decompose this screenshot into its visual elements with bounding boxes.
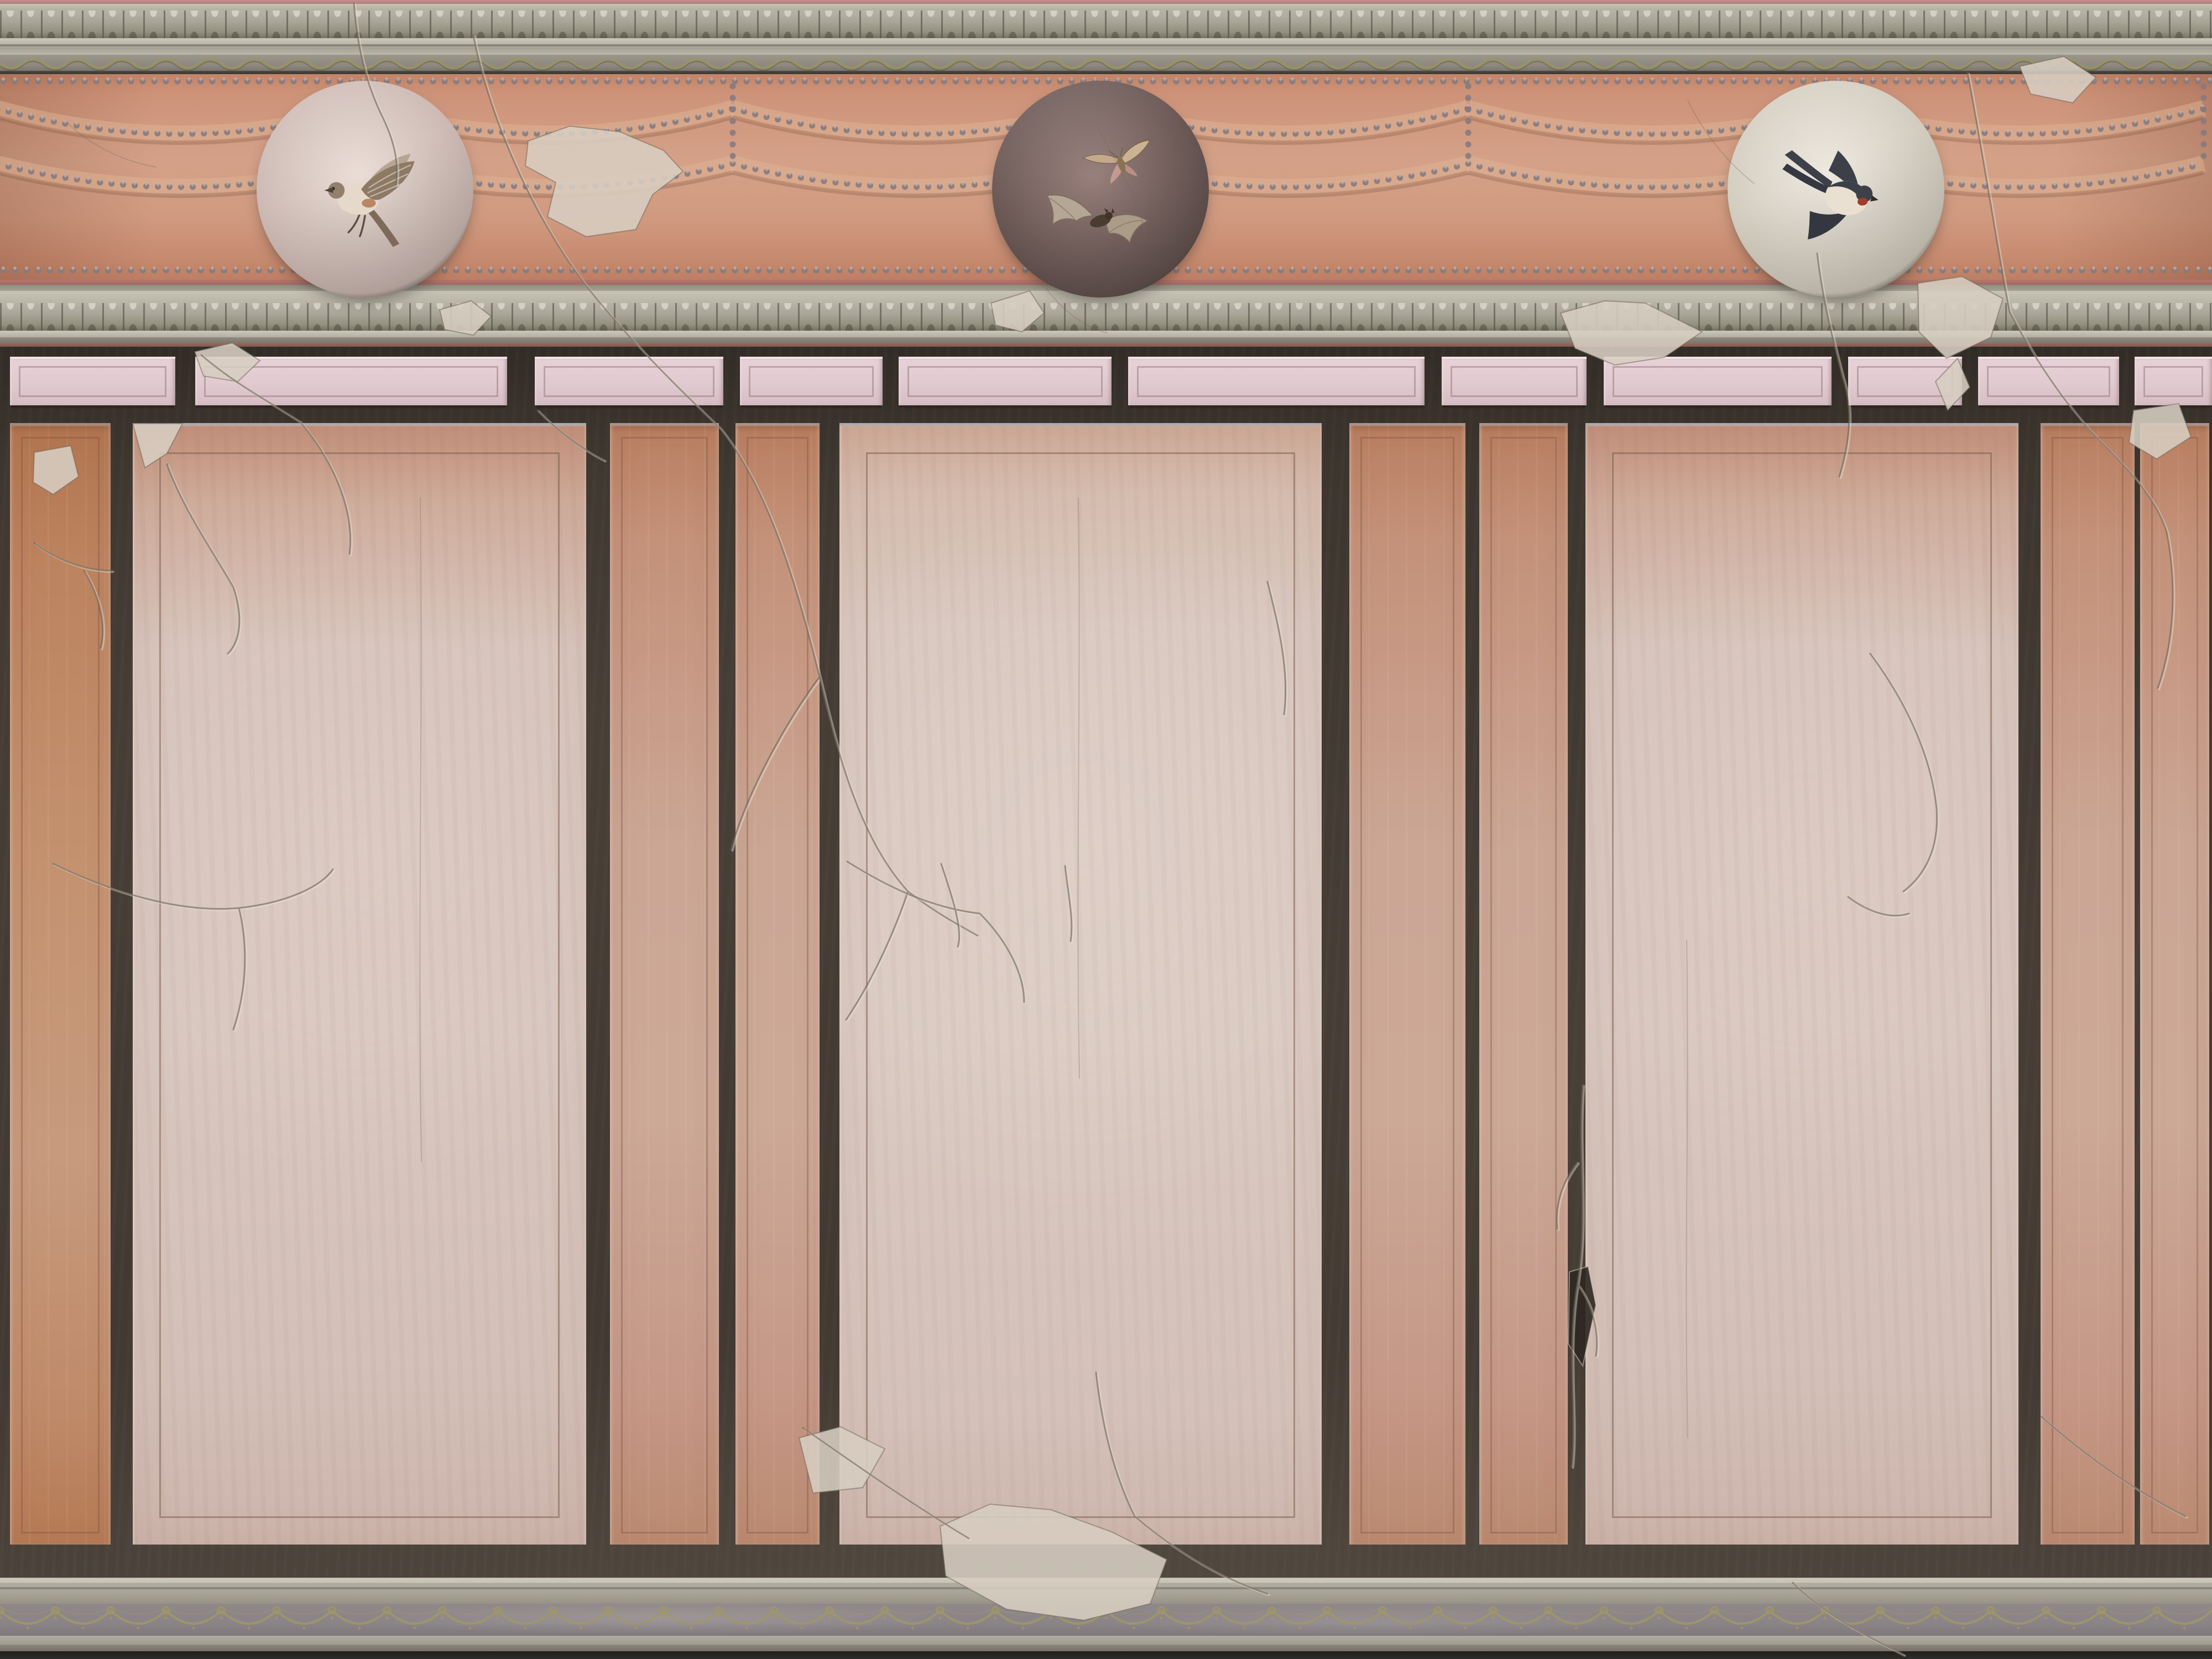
plaster-chip: [2129, 404, 2191, 459]
plaster-chip: [940, 1504, 1167, 1620]
plaster-chip: [1936, 358, 1970, 410]
plaster-chip: [1918, 276, 2003, 358]
plaster-chip: [1561, 301, 1702, 365]
plaster-chip: [525, 126, 683, 237]
crack-and-chip-overlay: [0, 0, 2212, 1659]
plaster-chip: [799, 1427, 885, 1493]
plaster-chip: [991, 291, 1044, 332]
plaster-chip: [440, 301, 491, 335]
fresco-mural-scene: [0, 0, 2212, 1659]
plaster-chip: [133, 424, 182, 468]
plaster-chip: [2020, 56, 2096, 103]
plaster-chip: [33, 446, 79, 494]
